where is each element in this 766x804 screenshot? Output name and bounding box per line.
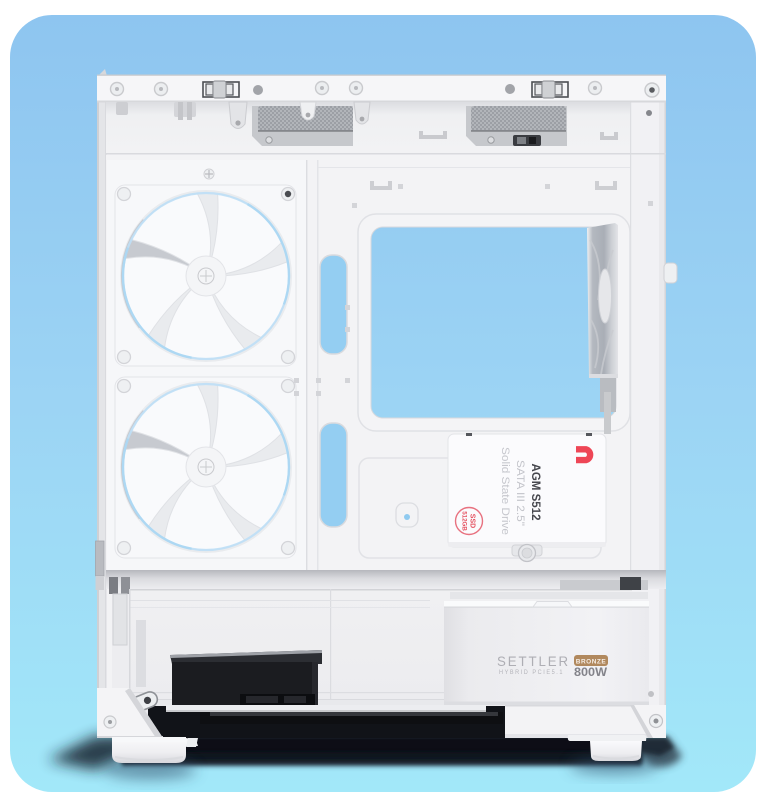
svg-text:Solid State Drive: Solid State Drive [499,447,511,535]
svg-text:800W: 800W [574,665,608,679]
svg-text:SSD: SSD [469,514,476,528]
svg-text:SATA III 2.5": SATA III 2.5" [514,460,526,526]
svg-text:HYBRID PCIE5.1: HYBRID PCIE5.1 [499,669,564,676]
svg-text:512GB: 512GB [461,511,468,531]
svg-text:AGM S512: AGM S512 [529,464,543,521]
svg-text:SETTLER: SETTLER [497,653,570,669]
